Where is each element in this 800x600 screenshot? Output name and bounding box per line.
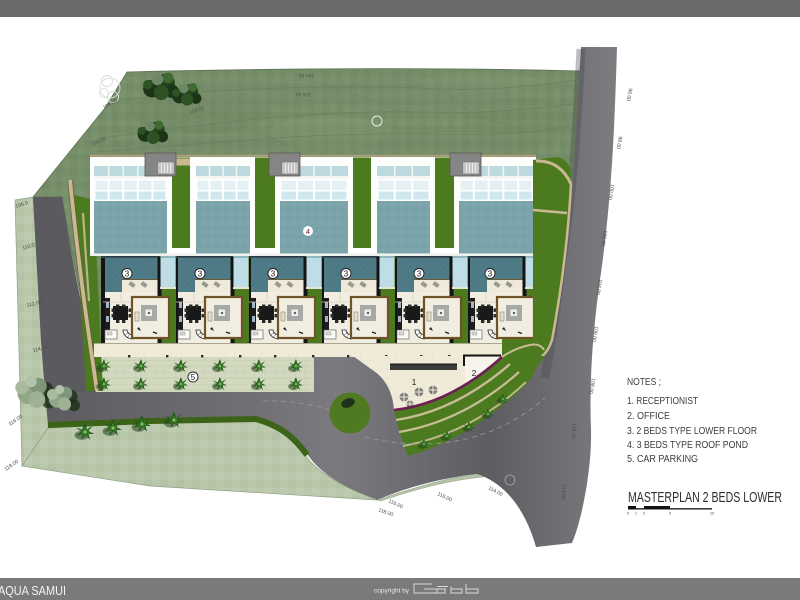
svg-text:2: 2 bbox=[643, 512, 645, 516]
svg-text:1: 1 bbox=[635, 512, 637, 516]
svg-text:5: 5 bbox=[191, 373, 196, 382]
svg-text:1. RECEPTIONIST: 1. RECEPTIONIST bbox=[627, 396, 698, 407]
svg-text:2: 2 bbox=[472, 368, 477, 378]
svg-text:AQUA SAMUI: AQUA SAMUI bbox=[0, 583, 66, 598]
svg-text:MASTERPLAN 2 BEDS LOWER: MASTERPLAN 2 BEDS LOWER bbox=[628, 490, 782, 506]
svg-text:5. CAR PARKING: 5. CAR PARKING bbox=[627, 454, 698, 465]
svg-text:NOTES ;: NOTES ; bbox=[627, 377, 661, 388]
svg-text:104.00: 104.00 bbox=[298, 72, 314, 79]
svg-text:3. 2 BEDS TYPE LOWER FLOOR: 3. 2 BEDS TYPE LOWER FLOOR bbox=[627, 426, 757, 437]
svg-text:4: 4 bbox=[306, 227, 310, 236]
svg-text:5: 5 bbox=[669, 512, 671, 516]
svg-text:1: 1 bbox=[412, 377, 417, 387]
svg-text:2. OFFICE: 2. OFFICE bbox=[627, 411, 670, 422]
svg-text:106.00: 106.00 bbox=[295, 91, 311, 98]
svg-text:0: 0 bbox=[627, 512, 629, 516]
svg-text:4. 3 BEDS TYPE ROOF POND: 4. 3 BEDS TYPE ROOF POND bbox=[627, 440, 748, 451]
svg-text:copyright by: copyright by bbox=[374, 588, 410, 595]
svg-text:10: 10 bbox=[710, 512, 714, 516]
